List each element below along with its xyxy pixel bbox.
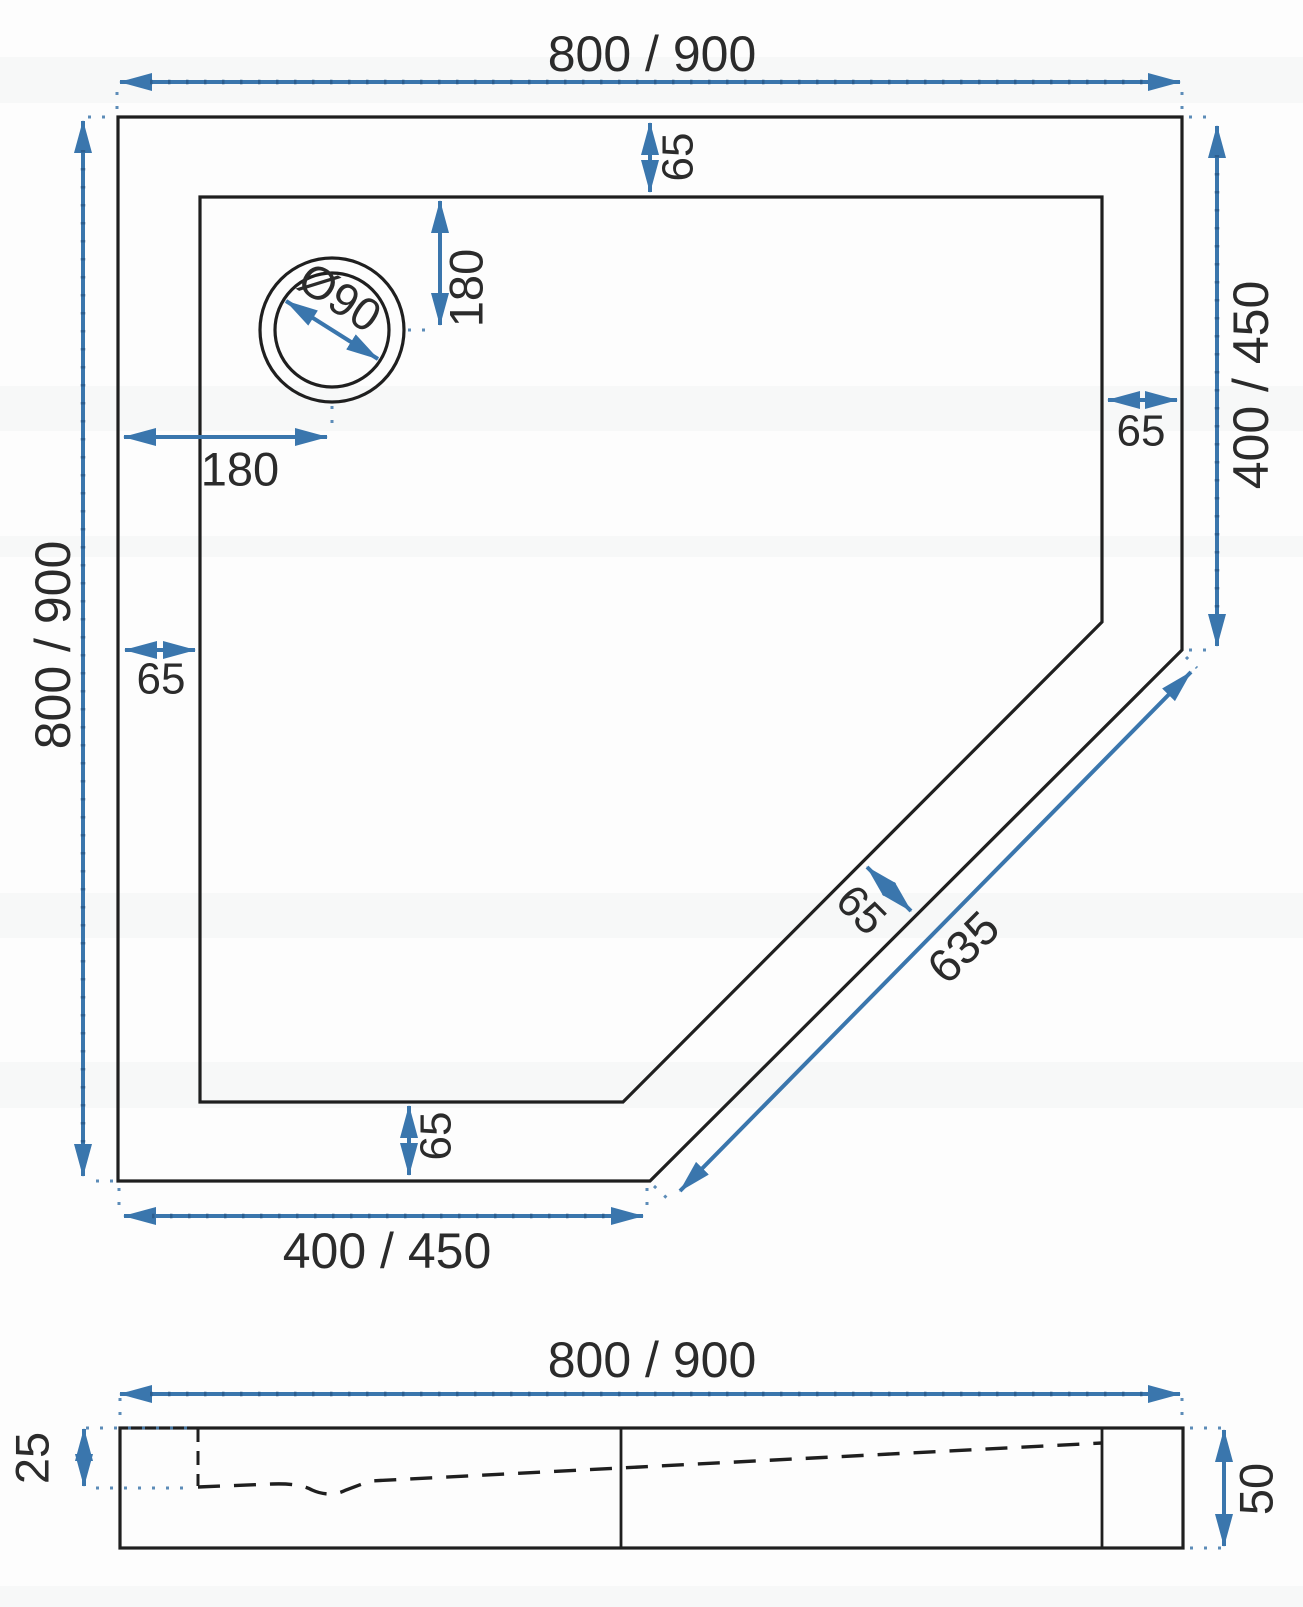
dim-drain-diameter: Ø90 <box>286 252 391 359</box>
dim-label-section-depth: 25 <box>6 1432 59 1484</box>
dim-section-height: 50 <box>1224 1430 1283 1546</box>
dim-section-depth: 25 <box>6 1429 85 1486</box>
dim-label-plan-top-width: 800 / 900 <box>548 26 757 82</box>
section-view: 800 / 900 25 50 <box>6 1332 1283 1548</box>
tray-outer-edge <box>118 117 1182 1181</box>
section-slope-hidden-line <box>198 1443 1102 1494</box>
dim-plan-right-width: 400 / 450 <box>1217 126 1279 646</box>
section-leader-dots <box>86 1398 1226 1548</box>
dim-rim-top: 65 <box>650 123 703 192</box>
dim-label-drain-horizontal-offset: 180 <box>201 443 279 496</box>
dim-label-rim-right: 65 <box>1117 407 1166 456</box>
dim-drain-horizontal-offset: 180 <box>124 437 327 496</box>
scan-band <box>0 536 1303 557</box>
dim-label-drain-vertical-offset: 180 <box>440 249 493 327</box>
dim-label-rim-bottom: 65 <box>412 1112 461 1161</box>
scan-band <box>0 386 1303 431</box>
dim-label-plan-bottom-width: 400 / 450 <box>283 1223 492 1279</box>
dim-section-width: 800 / 900 <box>120 1332 1180 1394</box>
dim-label-plan-left-height: 800 / 900 <box>25 541 81 750</box>
dim-label-rim-left: 65 <box>137 655 186 704</box>
dim-drain-vertical-offset: 180 <box>440 201 493 327</box>
scan-band <box>0 1586 1303 1607</box>
leader-dots <box>88 92 1212 1211</box>
dim-label-rim-top: 65 <box>654 133 703 182</box>
dim-plan-left-height: 800 / 900 <box>25 121 83 1176</box>
dim-rim-bottom: 65 <box>409 1106 461 1175</box>
scan-band <box>0 893 1303 938</box>
dim-label-section-height: 50 <box>1230 1463 1283 1515</box>
dim-rim-left: 65 <box>125 650 195 704</box>
dim-label-plan-right-width: 400 / 450 <box>1223 281 1279 490</box>
dim-plan-bottom-width: 400 / 450 <box>124 1216 643 1279</box>
scan-band <box>0 1062 1303 1108</box>
dim-label-section-width: 800 / 900 <box>548 1332 757 1388</box>
technical-drawing-page: 800 / 900 800 / 900 400 / 450 400 / 450 … <box>0 0 1303 1607</box>
shower-tray-drawing: 800 / 900 800 / 900 400 / 450 400 / 450 … <box>0 0 1303 1607</box>
